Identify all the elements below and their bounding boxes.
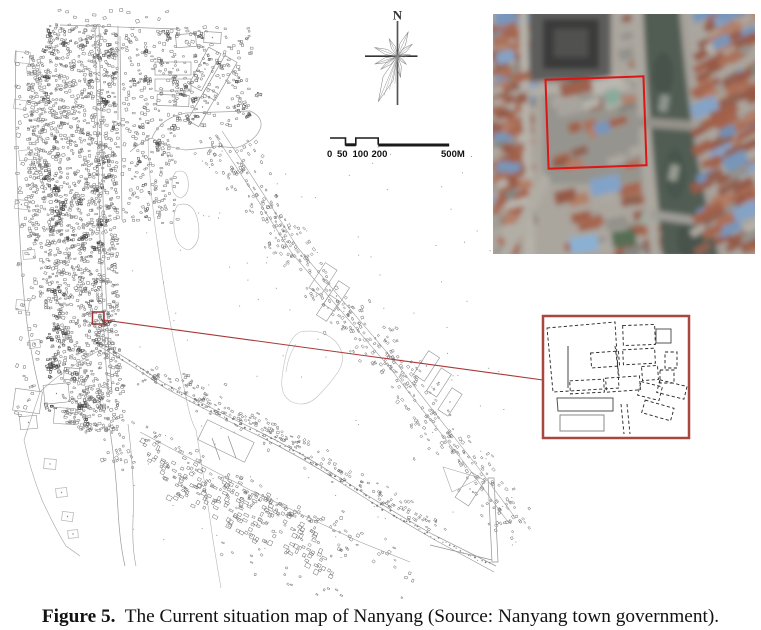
- svg-text:500M: 500M: [441, 149, 465, 160]
- svg-text:0: 0: [327, 149, 332, 160]
- svg-text:50: 50: [337, 149, 348, 160]
- svg-text:100: 100: [353, 149, 369, 160]
- svg-text:N: N: [393, 8, 403, 23]
- svg-text:200: 200: [372, 149, 388, 160]
